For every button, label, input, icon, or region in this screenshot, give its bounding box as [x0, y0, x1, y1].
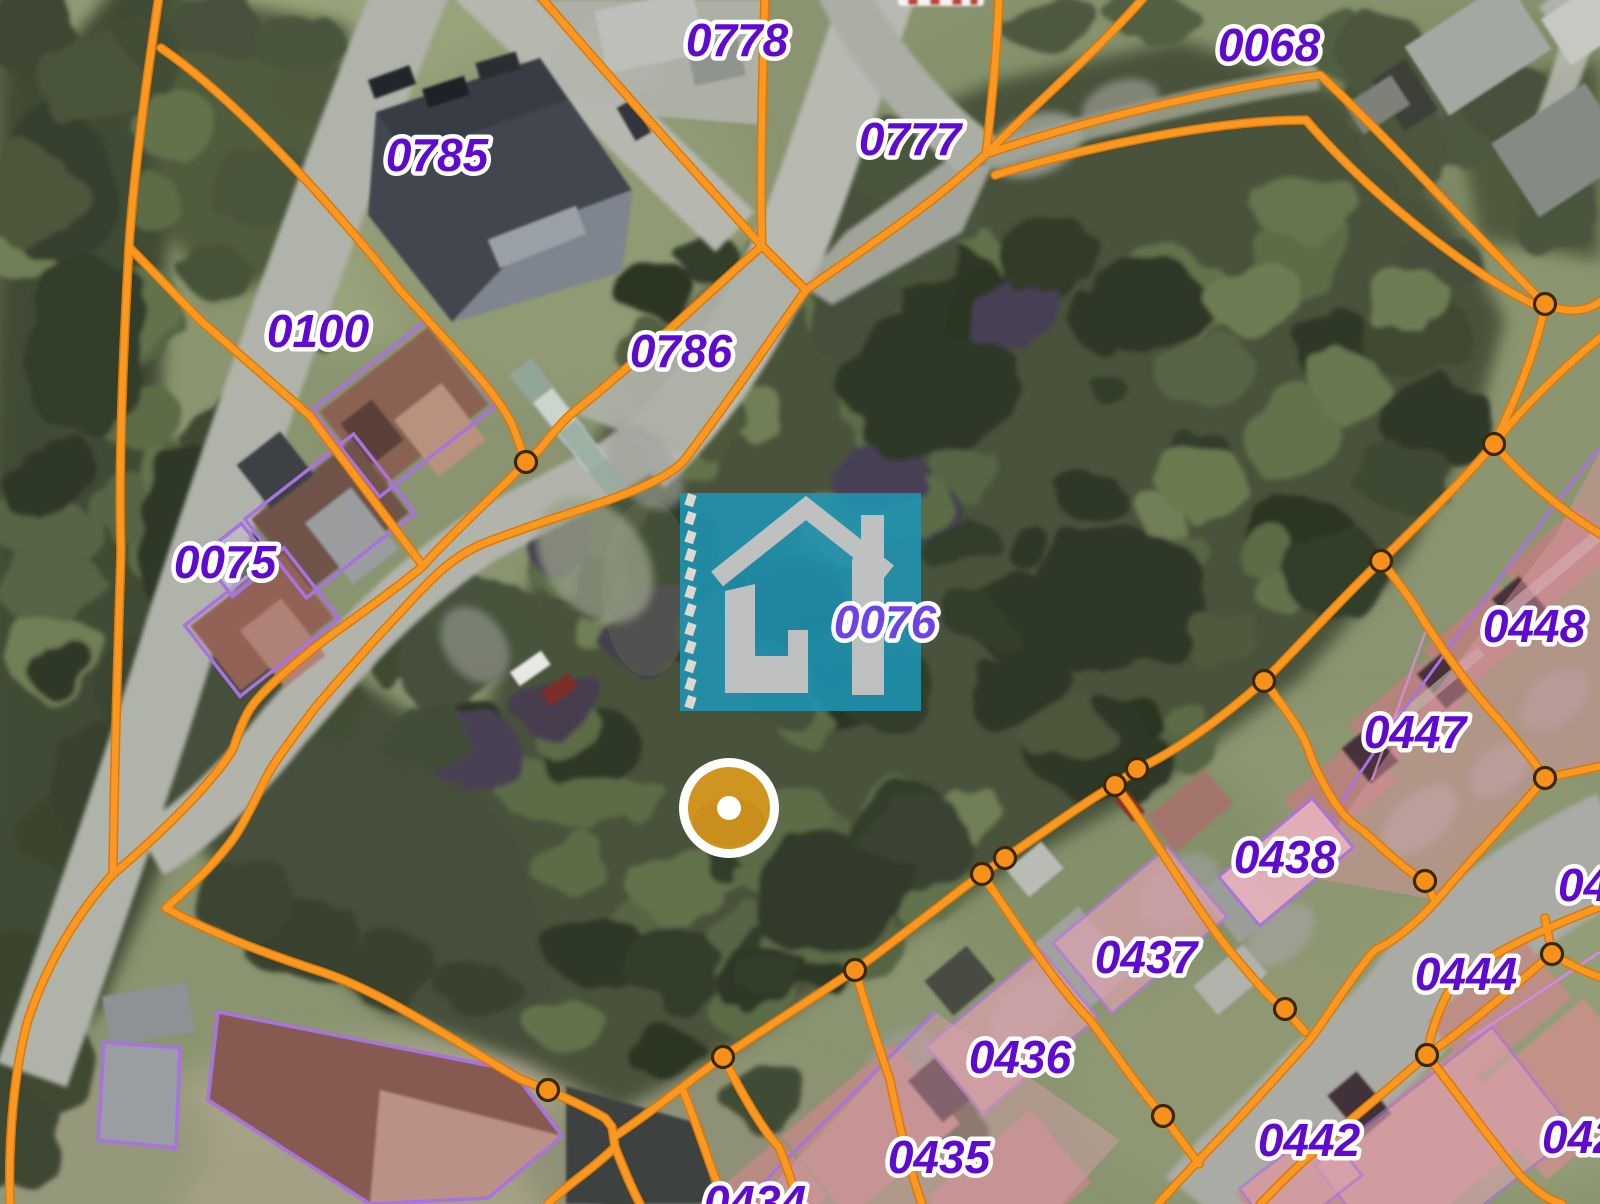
svg-text:0448: 0448 [1483, 600, 1586, 652]
svg-text:0076: 0076 [834, 596, 937, 648]
svg-text:0436: 0436 [969, 1031, 1072, 1083]
svg-text:0075: 0075 [174, 536, 278, 588]
svg-text:0442: 0442 [1258, 1114, 1361, 1166]
svg-text:0443: 0443 [1558, 859, 1600, 911]
svg-text:0786: 0786 [630, 325, 733, 377]
svg-text:0068: 0068 [1218, 19, 1321, 71]
svg-text:0424: 0424 [1542, 1111, 1600, 1163]
svg-text:0437: 0437 [1095, 931, 1200, 983]
svg-text:0777: 0777 [859, 113, 964, 165]
svg-text:0435: 0435 [888, 1131, 992, 1183]
svg-text:0778: 0778 [686, 14, 789, 66]
svg-text:0785: 0785 [386, 129, 490, 181]
svg-text:0434: 0434 [704, 1176, 806, 1204]
svg-text:0100: 0100 [267, 305, 370, 357]
svg-text:0447: 0447 [1364, 706, 1469, 758]
svg-text:0438: 0438 [1234, 831, 1337, 883]
svg-text:0444: 0444 [1415, 948, 1517, 1000]
